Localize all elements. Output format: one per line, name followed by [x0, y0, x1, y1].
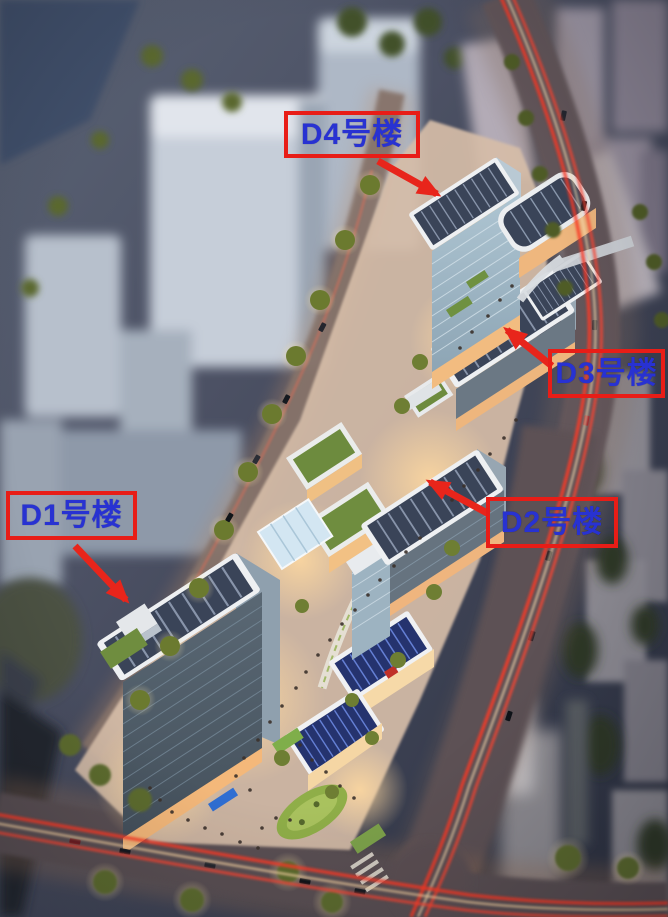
- label-building-d4: D4号楼: [284, 111, 420, 158]
- label-building-d3: D3号楼: [548, 349, 665, 398]
- label-building-d1: D1号楼: [6, 491, 137, 540]
- aerial-rendering: D1号楼 D2号楼 D3号楼 D4号楼: [0, 0, 668, 917]
- label-building-d2: D2号楼: [486, 497, 618, 548]
